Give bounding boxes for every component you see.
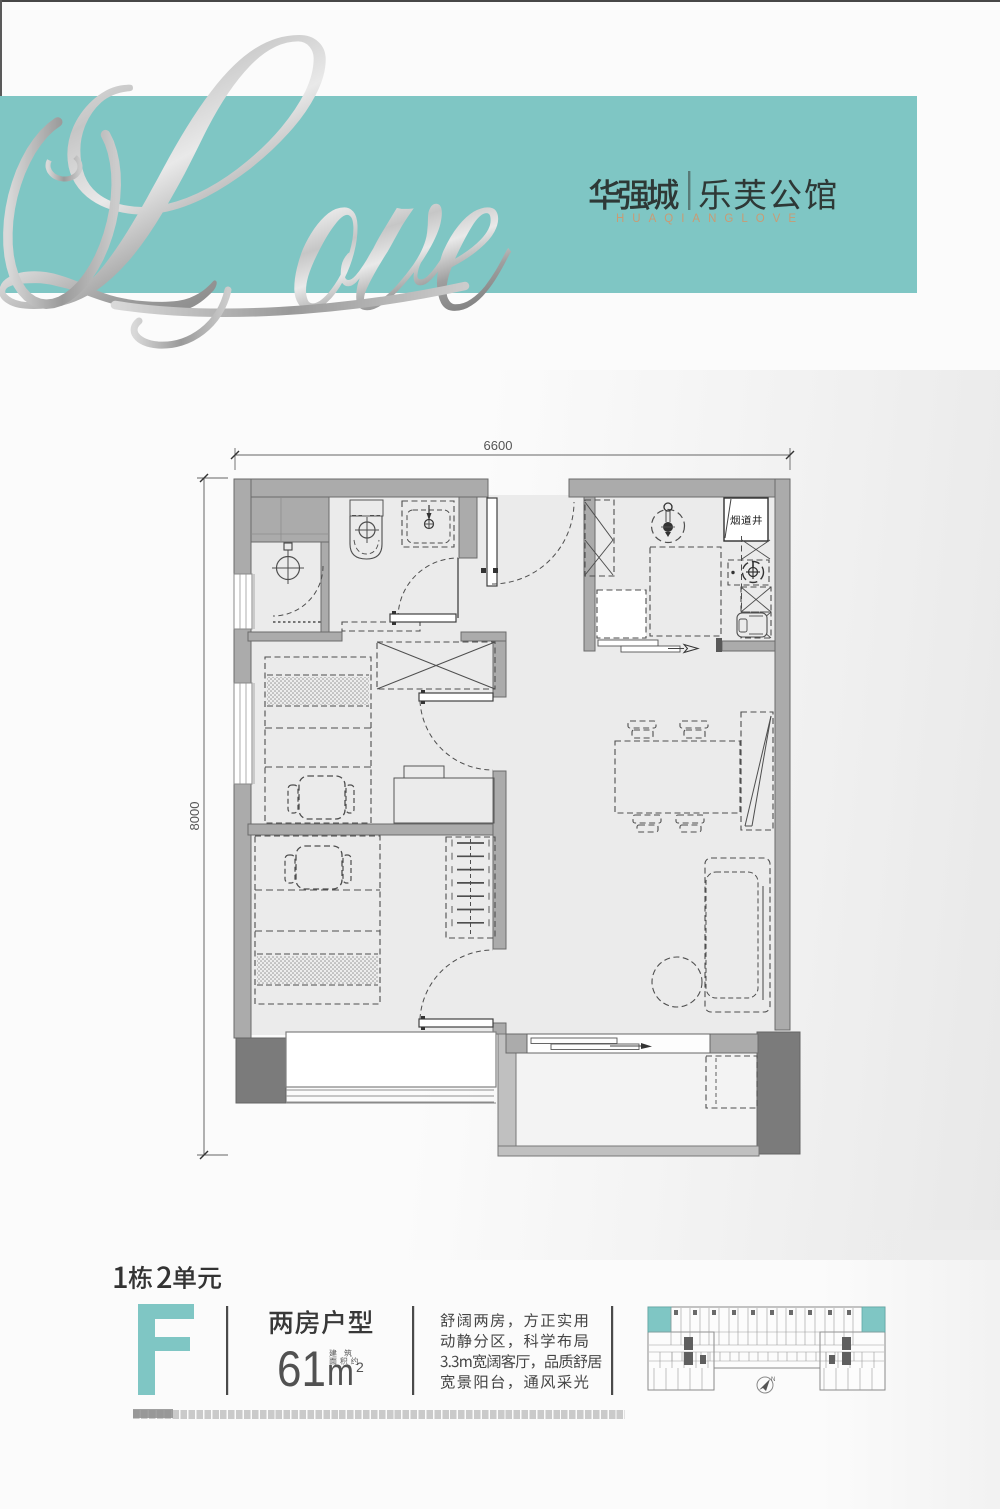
svg-text:N: N (771, 1377, 775, 1383)
